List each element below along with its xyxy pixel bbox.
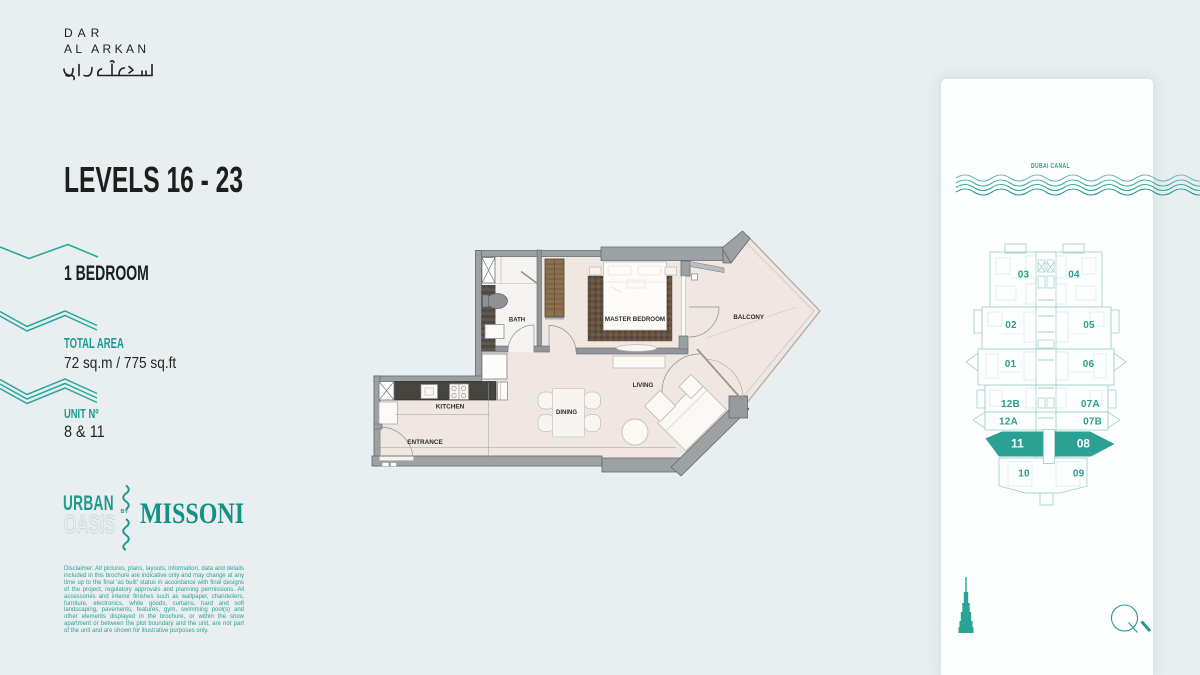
svg-text:06: 06 — [1083, 359, 1095, 370]
svg-text:12A: 12A — [999, 417, 1018, 428]
svg-text:11: 11 — [1011, 436, 1024, 450]
svg-text:04: 04 — [1068, 270, 1080, 281]
svg-text:DINING: DINING — [556, 410, 577, 416]
svg-text:01: 01 — [1005, 359, 1017, 370]
svg-text:LIVING: LIVING — [633, 382, 654, 389]
svg-text:12B: 12B — [1001, 399, 1020, 410]
svg-text:ENTRANCE: ENTRANCE — [407, 439, 443, 446]
svg-text:BALCONY: BALCONY — [733, 314, 764, 321]
svg-text:07B: 07B — [1083, 417, 1102, 428]
svg-text:MASTER BEDROOM: MASTER BEDROOM — [605, 316, 665, 323]
svg-text:10: 10 — [1018, 468, 1030, 479]
svg-text:08: 08 — [1077, 436, 1091, 450]
svg-text:BATH: BATH — [509, 318, 525, 324]
svg-text:02: 02 — [1005, 320, 1017, 331]
svg-text:KITCHEN: KITCHEN — [436, 404, 465, 411]
svg-text:03: 03 — [1018, 270, 1030, 281]
svg-text:05: 05 — [1083, 320, 1095, 331]
svg-text:07A: 07A — [1081, 399, 1100, 410]
svg-text:09: 09 — [1073, 468, 1085, 479]
